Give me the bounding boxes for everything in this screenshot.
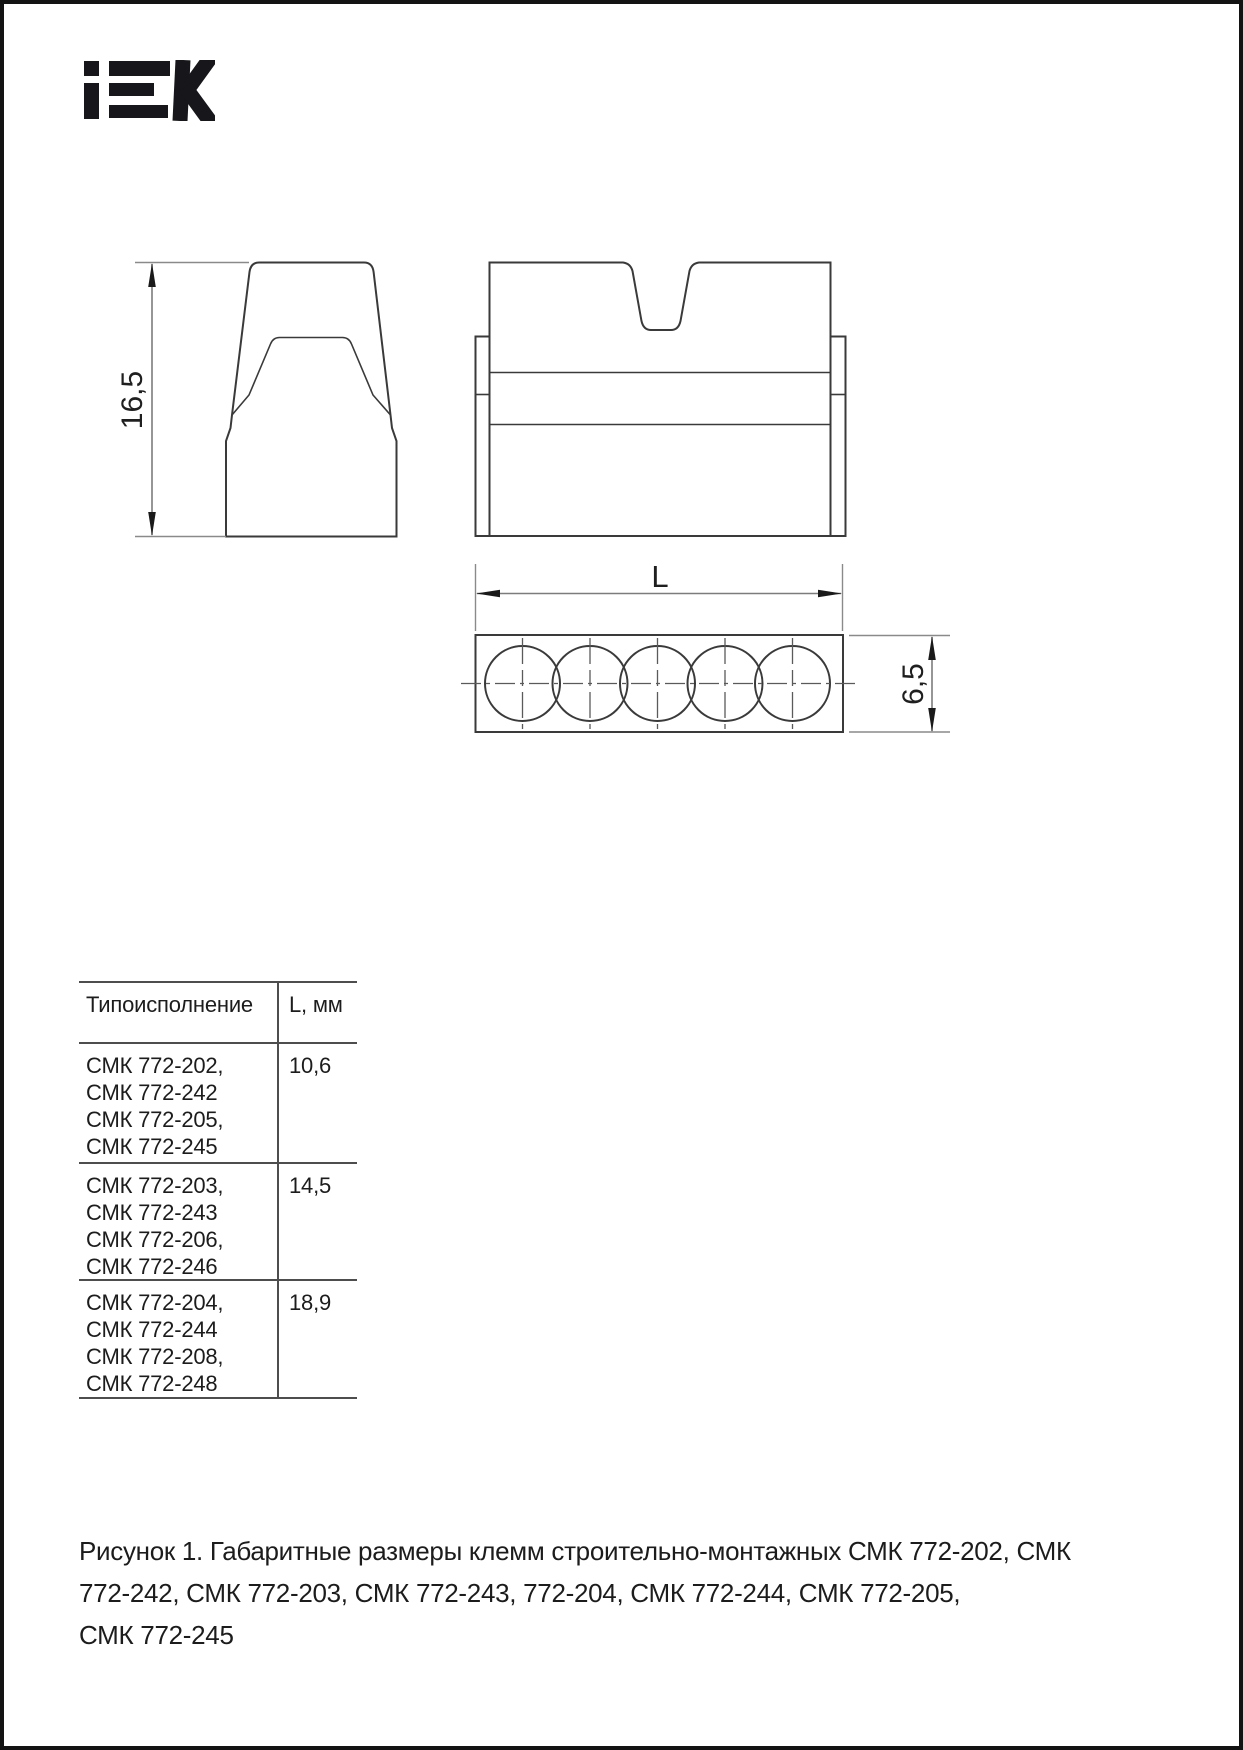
logo-i-stem	[84, 83, 99, 119]
front-view-right-tab	[831, 337, 846, 537]
type-line: СМК 772-246	[86, 1253, 277, 1280]
type-line: СМК 772-202,	[86, 1052, 277, 1079]
plan-view-centerlines	[461, 638, 857, 729]
technical-drawing: 16,5	[4, 4, 1239, 1746]
dim-label-16-5: 16,5	[116, 371, 149, 429]
iek-logo	[82, 60, 215, 121]
type-line: СМК 772-244	[86, 1316, 277, 1343]
table-cell-types: СМК 772-203, СМК 772-243 СМК 772-206, СМ…	[79, 1164, 277, 1279]
wire-hole-5	[755, 646, 830, 721]
type-line: СМК 772-245	[86, 1133, 277, 1160]
type-line: СМК 772-208,	[86, 1343, 277, 1370]
spec-table: Типоисполнение L, мм СМК 772-202, СМК 77…	[79, 981, 357, 1399]
iek-logo-glyphs	[84, 60, 212, 121]
table-cell-length: 10,6	[277, 1044, 357, 1162]
front-view	[476, 263, 846, 537]
wire-hole-1	[485, 646, 560, 721]
type-line: СМК 772-248	[86, 1370, 277, 1397]
type-line: СМК 772-205,	[86, 1106, 277, 1133]
table-header-row: Типоисполнение L, мм	[79, 981, 357, 1042]
type-line: СМК 772-206,	[86, 1226, 277, 1253]
plan-view: L 6,5	[461, 559, 950, 732]
side-view-outline	[226, 263, 397, 537]
table-cell-types: СМК 772-204, СМК 772-244 СМК 772-208, СМ…	[79, 1281, 277, 1397]
table-cell-types: СМК 772-202, СМК 772-242 СМК 772-205, СМ…	[79, 1044, 277, 1162]
table-cell-length: 14,5	[277, 1164, 357, 1279]
type-line: СМК 772-243	[86, 1199, 277, 1226]
table-header-type: Типоисполнение	[79, 983, 277, 1042]
wire-hole-4	[688, 646, 763, 721]
logo-k	[180, 60, 212, 121]
plan-view-holes	[485, 646, 830, 721]
table-header-length: L, мм	[277, 983, 357, 1042]
front-view-left-tab	[476, 337, 490, 537]
dimension-6-5: 6,5	[849, 636, 950, 733]
caption-line: 772-242, СМК 772-203, СМК 772-243, 772-2…	[79, 1572, 1209, 1614]
dimension-16-5: 16,5	[116, 263, 249, 537]
dim-label-L: L	[651, 559, 668, 594]
wire-hole-2	[553, 646, 628, 721]
caption-line: СМК 772-245	[79, 1614, 1209, 1656]
table-row: СМК 772-203, СМК 772-243 СМК 772-206, СМ…	[79, 1162, 357, 1279]
caption-line: Рисунок 1. Габаритные размеры клемм стро…	[79, 1530, 1209, 1572]
table-cell-length: 18,9	[277, 1281, 357, 1397]
logo-i-dot	[84, 61, 99, 76]
logo-e-top-bar	[109, 61, 170, 76]
type-line: СМК 772-203,	[86, 1172, 277, 1199]
table-row: СМК 772-204, СМК 772-244 СМК 772-208, СМ…	[79, 1279, 357, 1397]
logo-e-mid-bar	[109, 83, 154, 96]
table-row: СМК 772-202, СМК 772-242 СМК 772-205, СМ…	[79, 1042, 357, 1162]
type-line: СМК 772-204,	[86, 1289, 277, 1316]
type-line: СМК 772-242	[86, 1079, 277, 1106]
side-view: 16,5	[116, 263, 397, 537]
datasheet-page: 16,5	[0, 0, 1243, 1750]
plan-view-body	[476, 635, 844, 732]
wire-hole-3	[620, 646, 695, 721]
logo-e-bottom-bar	[109, 105, 168, 118]
dimension-L: L	[476, 559, 843, 631]
front-view-outline	[490, 263, 831, 537]
figure-caption: Рисунок 1. Габаритные размеры клемм стро…	[79, 1530, 1209, 1656]
dim-label-6-5: 6,5	[897, 663, 930, 705]
side-view-inner-line	[232, 338, 391, 416]
